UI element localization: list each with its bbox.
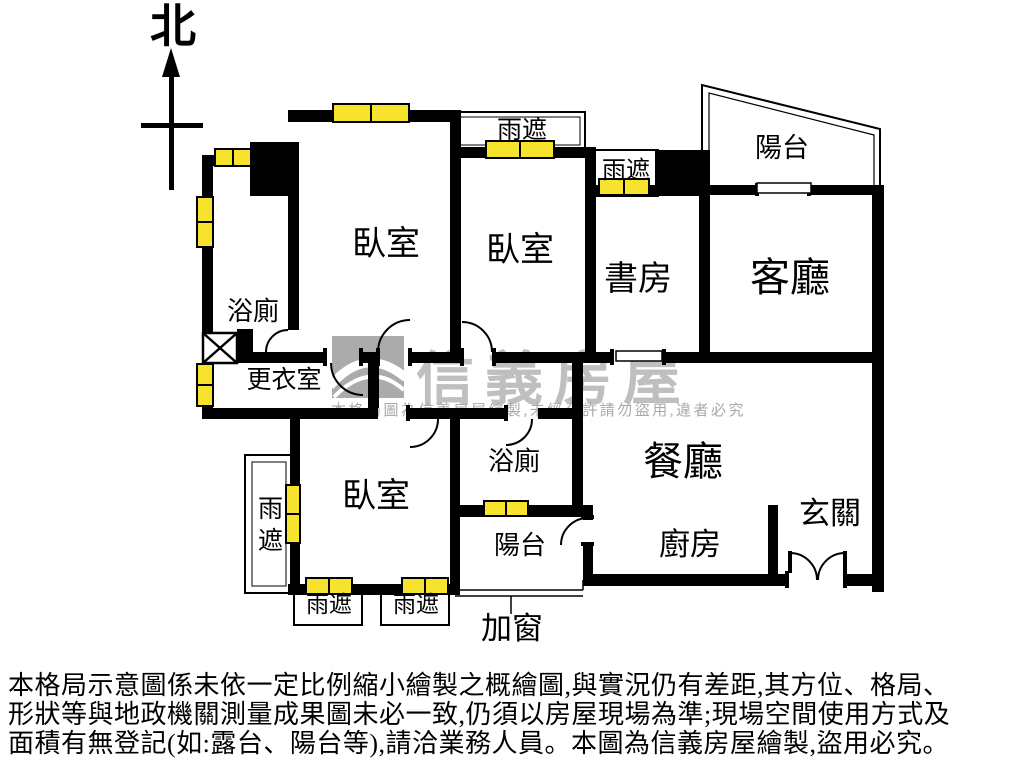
room-label-foyer: 玄關 [790,497,870,531]
disclaimer-line3: 面積有無登記(如:露台、陽台等),請洽業務人員。本圖為信義房屋繪製,盜用必究。 [8,729,1018,758]
canopy-label-top1: 雨遮 [494,117,550,145]
room-label-bedroom-top-mid: 臥室 [482,232,558,269]
added-window-label: 加窗 [476,612,548,646]
room-label-dressing: 更衣室 [238,367,330,395]
room-label-bedroom-top-left: 臥室 [348,226,424,263]
room-label-bedroom-bottom: 臥室 [338,478,414,515]
room-label-balcony-top: 陽台 [752,134,812,164]
canopy-label-left: 雨遮 [254,482,282,572]
room-label-balcony-bottom: 陽台 [492,532,548,561]
floorplan-page: 信義房屋 本格局圖為信義房屋繪製,未經允許請勿盜用,違者必究 [0,0,1024,768]
room-label-bathroom-bottom: 浴廁 [486,448,542,477]
room-label-study: 書房 [602,261,674,298]
room-label-bathroom-top: 浴廁 [222,298,284,327]
disclaimer-line1: 本格局示意圖係未依一定比例縮小繪製之概繪圖,與實況仍有差距,其方位、格局、 [8,671,1018,700]
north-label: 北 [148,2,198,53]
canopy-label-bottom2: 雨遮 [388,592,444,617]
canopy-label-top2: 雨遮 [600,158,652,184]
room-label-dining: 餐廳 [634,440,732,484]
room-label-kitchen: 廚房 [648,528,732,562]
disclaimer-text: 本格局示意圖係未依一定比例縮小繪製之概繪圖,與實況仍有差距,其方位、格局、 形狀… [8,671,1018,758]
disclaimer-line2: 形狀等與地政機關測量成果圖未必一致,仍須以房屋現場為準;現場空間使用方式及 [8,700,1018,729]
room-label-living: 客廳 [742,256,838,300]
canopy-label-bottom1: 雨遮 [301,592,357,617]
